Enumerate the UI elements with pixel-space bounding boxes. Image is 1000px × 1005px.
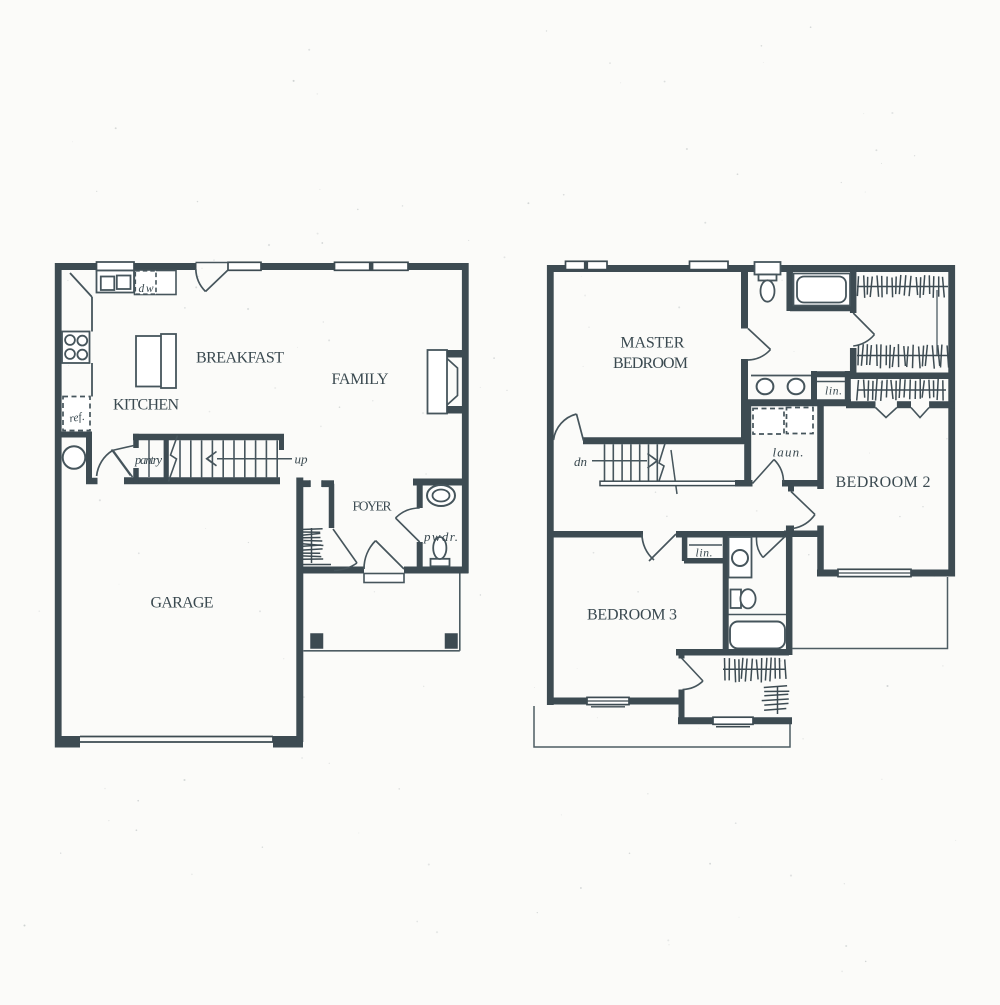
svg-text:KITCHEN: KITCHEN: [113, 397, 179, 414]
svg-text:BEDROOM: BEDROOM: [613, 355, 688, 372]
svg-text:dn: dn: [574, 454, 587, 469]
svg-text:FAMILY: FAMILY: [332, 371, 389, 388]
svg-text:GARAGE: GARAGE: [151, 595, 214, 612]
svg-text:BREAKFAST: BREAKFAST: [196, 350, 284, 367]
svg-text:lin.: lin.: [696, 548, 713, 560]
svg-text:laun.: laun.: [773, 445, 804, 460]
svg-text:FOYER: FOYER: [353, 499, 392, 514]
svg-text:dw: dw: [139, 283, 154, 295]
svg-text:MASTER: MASTER: [620, 335, 684, 352]
svg-text:BEDROOM 2: BEDROOM 2: [836, 474, 931, 491]
svg-text:lin.: lin.: [825, 386, 842, 398]
svg-text:BEDROOM 3: BEDROOM 3: [587, 607, 677, 624]
svg-text:pantry: pantry: [134, 453, 162, 467]
svg-text:pwdr.: pwdr.: [423, 529, 458, 544]
svg-text:up: up: [295, 452, 309, 467]
